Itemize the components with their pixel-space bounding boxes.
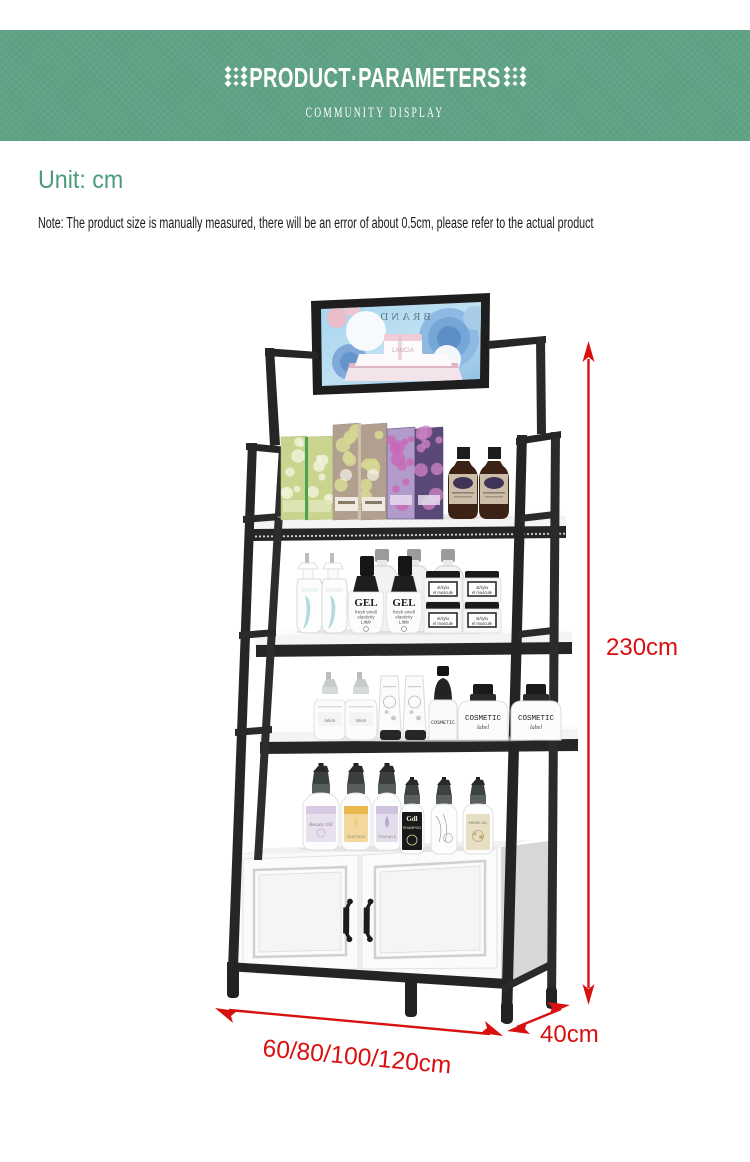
svg-text:Gdl: Gdl — [406, 815, 417, 823]
svg-text:shampoo: shampoo — [378, 834, 397, 839]
svg-text:230cm: 230cm — [606, 634, 678, 661]
svg-text:GEL: GEL — [354, 597, 377, 609]
svg-text:elasticity: elasticity — [357, 615, 375, 620]
svg-text:Little: Little — [399, 620, 409, 626]
svg-text:COSMETIC: COSMETIC — [518, 715, 555, 723]
svg-text:BRAND: BRAND — [377, 311, 431, 323]
svg-text:label: label — [477, 725, 489, 731]
svg-text:lotion: lotion — [325, 718, 336, 723]
svg-text:Beauty Oil: Beauty Oil — [309, 822, 333, 828]
svg-text:HERB OIL: HERB OIL — [469, 820, 488, 825]
svg-text:el muscule: el muscule — [433, 621, 454, 626]
svg-text:lotion: lotion — [356, 718, 367, 723]
svg-text:elasticity: elasticity — [395, 615, 413, 620]
svg-text:40cm: 40cm — [540, 1021, 599, 1048]
svg-text:el muscule: el muscule — [433, 590, 454, 595]
svg-text:Little: Little — [361, 620, 371, 626]
svg-text:COSMETIC: COSMETIC — [431, 720, 455, 726]
svg-text:SHAMPOO: SHAMPOO — [403, 826, 422, 830]
svg-text:GEL: GEL — [392, 597, 415, 609]
svg-text:LANCIA: LANCIA — [392, 348, 414, 354]
svg-text:shampoo: shampoo — [347, 834, 366, 839]
svg-text:60/80/100/120cm: 60/80/100/120cm — [261, 1035, 452, 1079]
svg-text:label: label — [530, 725, 542, 731]
svg-text:el muscule: el muscule — [472, 621, 493, 626]
svg-text:COSMETIC: COSMETIC — [465, 715, 502, 723]
svg-text:el muscule: el muscule — [472, 590, 493, 595]
